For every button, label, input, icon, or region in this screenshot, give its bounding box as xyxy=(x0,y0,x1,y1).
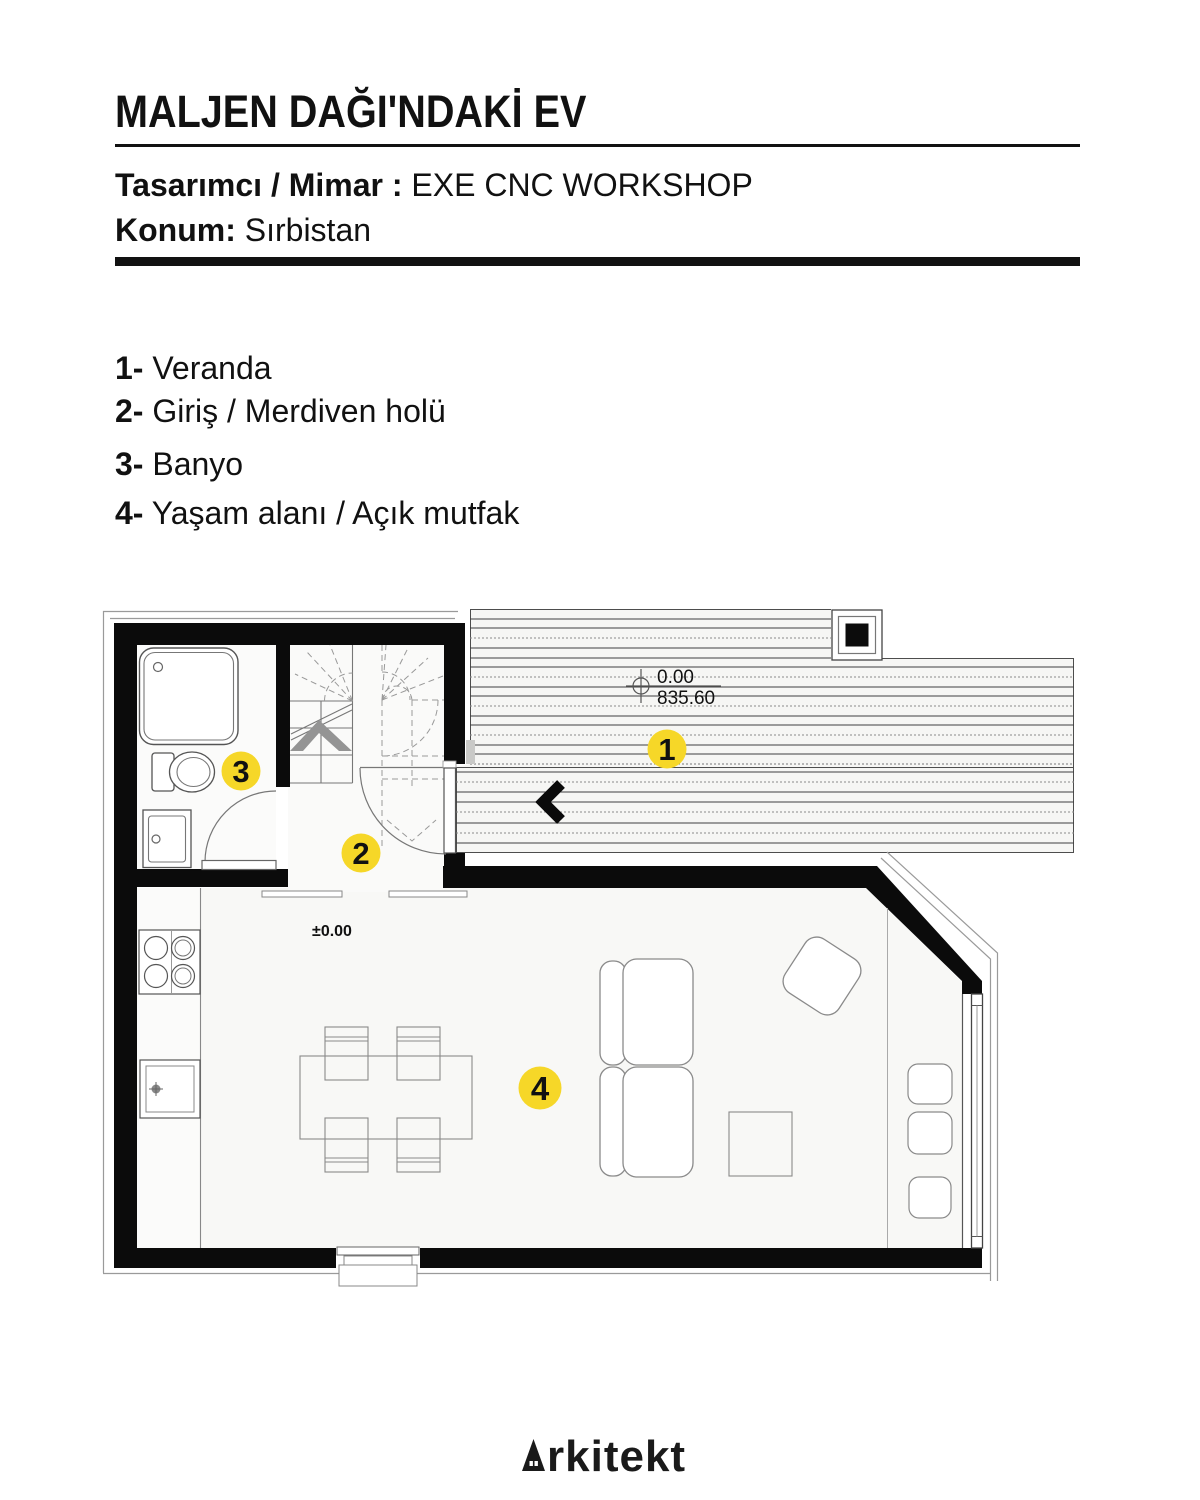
svg-text:rkitekt: rkitekt xyxy=(547,1432,686,1481)
